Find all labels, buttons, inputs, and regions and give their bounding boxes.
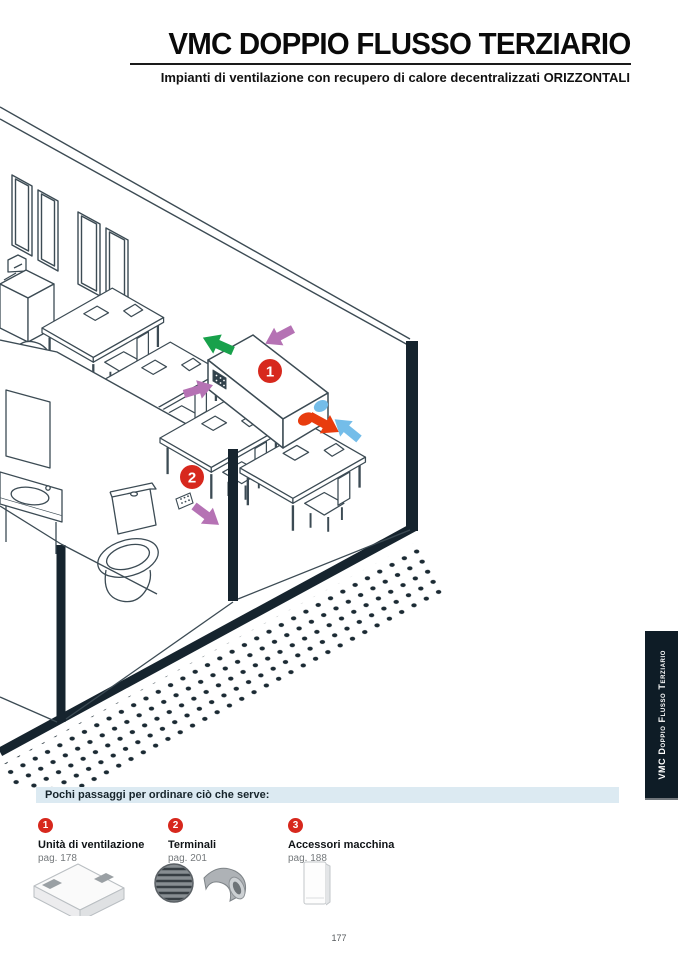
chapter-side-tab-label: VMC Doppio Flusso Terziario [657,650,667,780]
page-subtitle: Impianti di ventilazione con recupero di… [161,70,630,85]
step-name: Accessori macchina [288,839,418,851]
chapter-side-tab: VMC Doppio Flusso Terziario [645,631,678,800]
step-number-badge: 3 [288,818,303,833]
order-steps-banner: Pochi passaggi per ordinare ciò che serv… [36,787,619,803]
order-steps-heading: Pochi passaggi per ordinare ciò che serv… [36,789,269,801]
isometric-illustration: 1 2 [0,100,490,790]
step-marker-2: 2 [180,465,204,489]
step-marker-1: 1 [258,359,282,383]
ventilation-unit-thumbnail [28,860,132,916]
step-name: Unità di ventilazione [38,839,168,851]
duct-elbow-icon [204,868,248,901]
catalog-page: VMC DOPPIO FLUSSO TERZIARIO Impianti di … [0,0,678,959]
page-title: VMC DOPPIO FLUSSO TERZIARIO [168,26,630,62]
accessory-thumbnail [298,858,338,910]
svg-text:1: 1 [266,364,274,381]
step-number-badge: 1 [38,818,53,833]
terminals-thumbnail [152,858,262,910]
back-wall [0,107,410,345]
svg-text:2: 2 [188,470,196,487]
page-number: 177 [0,933,678,943]
step-item-unit: 1 Unità di ventilazione pag. 178 [38,818,168,864]
step-number-badge: 2 [168,818,183,833]
title-rule [130,63,631,65]
step-name: Terminali [168,839,298,851]
